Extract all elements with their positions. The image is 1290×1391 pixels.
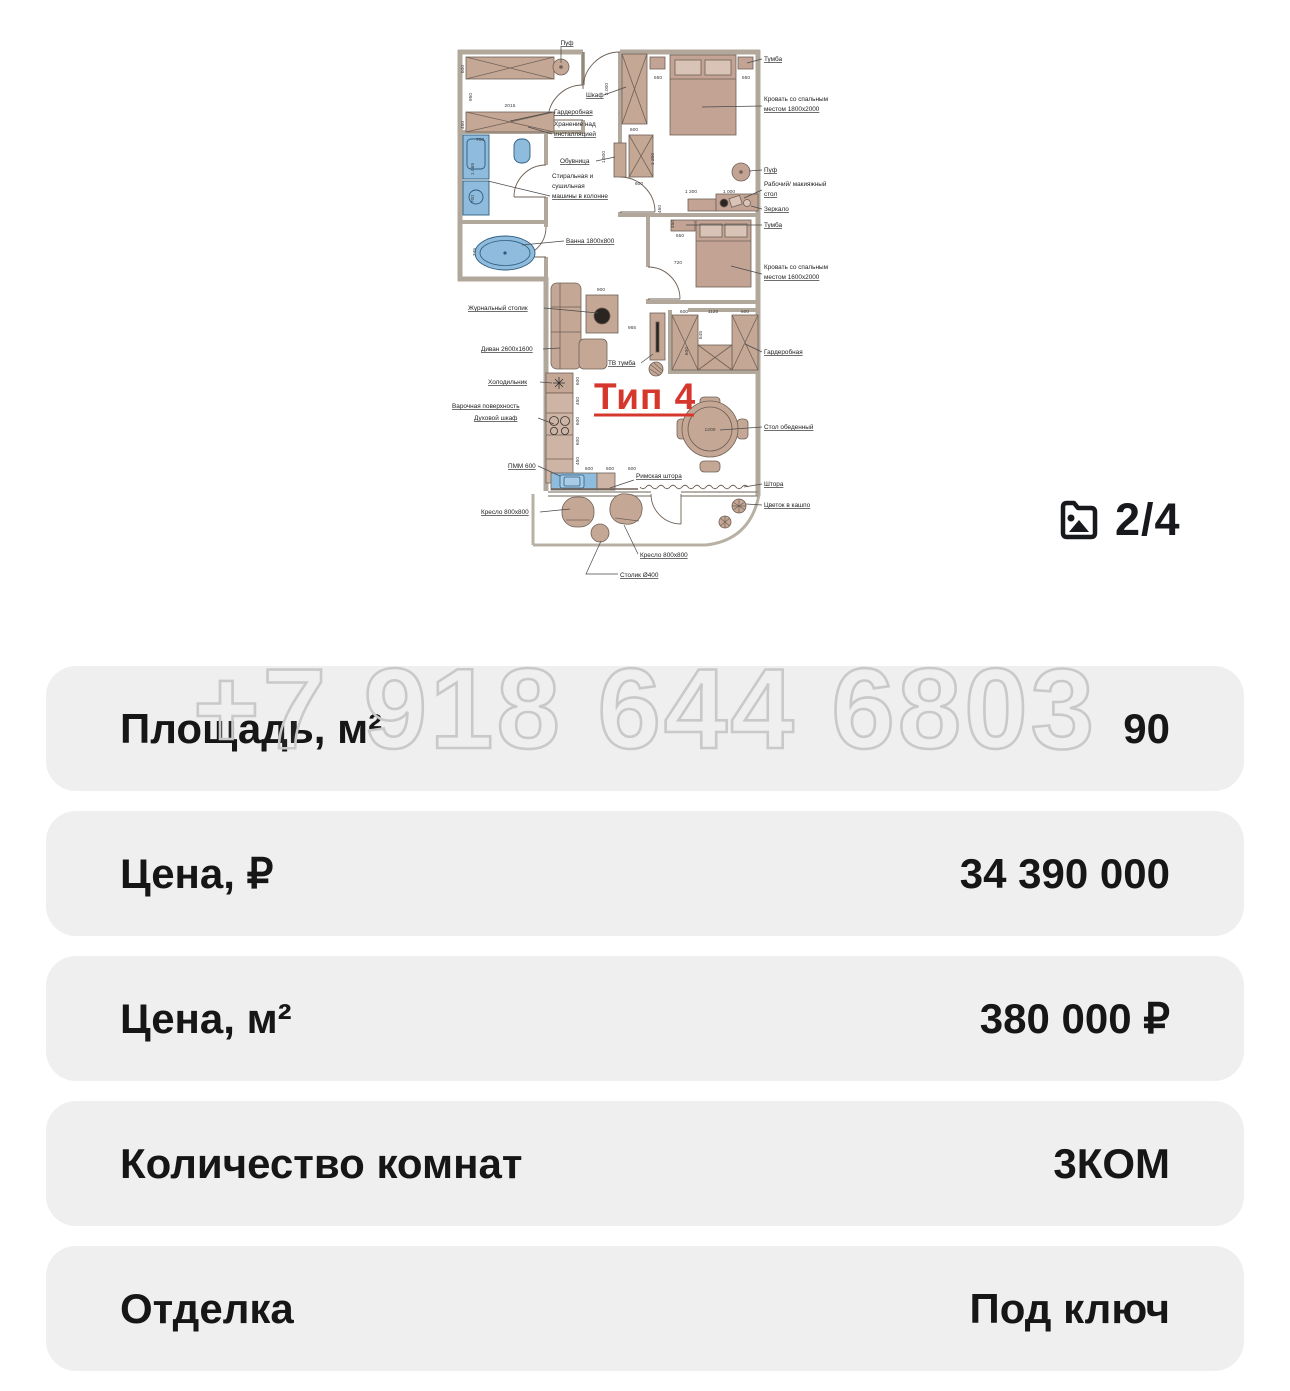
row-price-per-m2: Цена, м² 380 000 ₽	[46, 956, 1244, 1081]
plan-dimension: 600	[575, 377, 581, 385]
plan-dimension: 600	[630, 127, 638, 133]
photo-counter[interactable]: 2/4	[1056, 494, 1181, 546]
floor-plan-image[interactable]: Тип 4 ПуфШкафГардеробнаяХранение надинст…	[448, 16, 872, 602]
kitchen-counter	[546, 393, 573, 483]
plan-dimension: 1200	[705, 427, 716, 433]
plan-label: Журнальный столик	[468, 304, 528, 312]
plan-dimension: 745	[472, 248, 478, 256]
plan-dimension: 600	[628, 466, 636, 472]
plan-label: стол	[764, 191, 777, 198]
plan-dimension: 600	[575, 437, 581, 445]
plan-label: Зеркало	[764, 206, 789, 213]
plan-label: Кресло 800x800	[481, 509, 529, 516]
plan-type-label: Тип 4	[594, 376, 696, 417]
floor-plan-svg: Тип 4 ПуфШкафГардеробнаяХранение надинст…	[448, 16, 872, 602]
plan-dimension: 1 200	[650, 153, 656, 166]
plan-label: Тумба	[764, 55, 783, 63]
plan-dimension: 450	[575, 457, 581, 465]
plan-dimension: 650	[676, 233, 684, 239]
sofa	[551, 283, 581, 369]
plan-label: Хранение над	[554, 121, 596, 128]
plan-label: сушильная	[552, 183, 585, 190]
plan-label: Кровать со спальным	[764, 96, 828, 103]
plan-label: Тумба	[764, 221, 783, 229]
row-value: Под ключ	[970, 1285, 1170, 1333]
plan-label: Диван 2600x1600	[481, 346, 533, 353]
plan-dimension: 600	[684, 347, 690, 355]
plan-dimension: 1.500	[601, 151, 607, 164]
plan-dimension: 845	[698, 331, 704, 339]
plan-dimension: 600	[575, 417, 581, 425]
window-line	[548, 492, 758, 496]
side-table	[591, 524, 609, 542]
plan-dimension: 600	[460, 65, 466, 73]
plan-label: Стол обеденный	[764, 423, 814, 431]
plan-label: Пуф	[764, 167, 777, 174]
plan-dimension: 460	[657, 205, 663, 213]
plan-label: машины в колонне	[552, 193, 608, 200]
toilet	[514, 139, 530, 163]
plan-dimension: 700	[470, 195, 476, 203]
plan-dimension: 600	[606, 466, 614, 472]
plan-dimension: 600	[680, 309, 688, 315]
photo-counter-text: 2/4	[1115, 494, 1181, 546]
plan-label: Римская штора	[636, 473, 682, 480]
info-table: Площадь, м² 90 Цена, ₽ 34 390 000 Цена, …	[46, 666, 1244, 1391]
plan-label: Штора	[764, 481, 784, 488]
plan-dimension: 720	[674, 260, 682, 266]
curtain-wave	[640, 485, 748, 489]
plan-dimension: 1.065	[470, 163, 476, 176]
row-value: 90	[1123, 705, 1170, 753]
row-label: Отделка	[120, 1285, 294, 1333]
plan-dimension: 600	[741, 309, 749, 315]
plan-dimension: 1 200	[685, 189, 698, 195]
plan-label: инсталляцией	[554, 130, 596, 138]
row-area: Площадь, м² 90	[46, 666, 1244, 791]
plan-dimension: 550	[742, 75, 750, 81]
plan-label: Цветок в кашпо	[764, 502, 811, 509]
plan-label: Пуф	[561, 40, 574, 47]
row-value: 380 000 ₽	[980, 994, 1170, 1043]
row-rooms: Количество комнат 3КОМ	[46, 1101, 1244, 1226]
plan-label: Обувница	[560, 157, 590, 165]
plan-label: Кровать со спальным	[764, 264, 828, 271]
row-label: Количество комнат	[120, 1140, 522, 1188]
plan-dimension: 900	[597, 287, 605, 293]
bedroom2-furniture	[671, 220, 751, 287]
plan-label: Стиральная и	[552, 173, 594, 180]
row-finishing: Отделка Под ключ	[46, 1246, 1244, 1371]
row-label: Цена, ₽	[120, 849, 273, 898]
plan-label: Кресло 800x800	[640, 552, 688, 559]
plan-dimension: 450	[670, 220, 676, 228]
plan-dimension: 450	[460, 121, 466, 129]
plan-label: Варочная поверхность	[452, 403, 520, 410]
plan-dimension: 950	[468, 93, 474, 101]
photo-icon	[1056, 498, 1102, 542]
plan-dimension: 700	[476, 137, 484, 143]
plan-label: Столик Ø400	[620, 572, 659, 579]
plan-label: Духовой шкаф	[474, 414, 517, 422]
armchair	[562, 497, 594, 527]
plan-label: Холодильник	[488, 379, 527, 386]
plan-label: Гардеробная	[554, 108, 593, 116]
row-price: Цена, ₽ 34 390 000	[46, 811, 1244, 936]
plan-dimension: 600	[635, 181, 643, 187]
row-value: 3КОМ	[1053, 1140, 1170, 1188]
plan-label: ПММ 600	[508, 463, 536, 470]
plan-label: Рабочий/ макияжный	[764, 180, 827, 188]
plan-label: местом 1600x2000	[764, 274, 820, 281]
shoe-cabinet	[614, 143, 626, 177]
plan-label: местом 1800x2000	[764, 106, 820, 113]
plan-dimension: 450	[575, 397, 581, 405]
row-label: Цена, м²	[120, 995, 292, 1043]
plan-label: ТВ тумба	[608, 359, 636, 367]
plan-label: Шкаф	[586, 92, 604, 99]
plan-label: Ванна 1800x800	[566, 238, 615, 245]
row-value: 34 390 000	[960, 850, 1170, 898]
row-label: Площадь, м²	[120, 705, 382, 753]
plan-label: Гардеробная	[764, 348, 803, 356]
plan-dimension: 1 000	[723, 189, 736, 195]
plant	[594, 308, 610, 324]
plan-dimension: 2015	[505, 103, 516, 109]
plan-dimension: 1120	[708, 309, 719, 315]
plan-dimension: 2.000	[604, 83, 610, 96]
plan-dimension: 600	[585, 466, 593, 472]
plan-dimension: 550	[654, 75, 662, 81]
plan-dimension: 965	[628, 325, 636, 331]
